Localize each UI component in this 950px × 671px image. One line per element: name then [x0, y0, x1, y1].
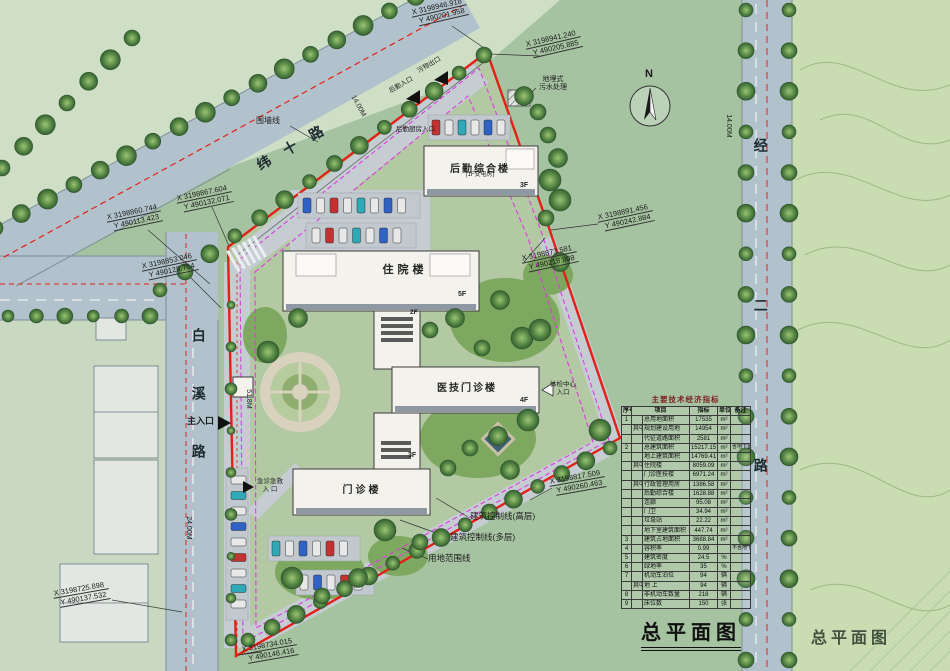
table-row: 连廊95.08m²: [622, 498, 751, 507]
annotation-sewage-line2: 污水处理: [532, 84, 574, 92]
entrance-label-kitchen: 后勤厨房入口: [396, 126, 435, 134]
tree-icon: [781, 43, 797, 59]
table-row: 门卫34.94m²: [622, 508, 751, 517]
tree-icon: [287, 605, 305, 623]
entrance-label-checkup-line1: 体检中心: [548, 381, 578, 389]
tree-icon: [2, 310, 14, 322]
tree-icon: [476, 47, 492, 63]
table-cell: 非机动车数量: [643, 590, 690, 599]
car-icon: [231, 523, 246, 531]
th-unit: 单位: [718, 407, 731, 416]
table-cell: 24.5: [690, 554, 718, 563]
table-cell: [622, 526, 632, 535]
table-cell: 建筑占地面积: [643, 535, 690, 544]
table-cell: m²: [718, 480, 731, 489]
tree-icon: [515, 87, 534, 106]
car-icon: [484, 120, 492, 135]
tree-icon: [170, 118, 188, 136]
table-row: 其中住院楼8059.09m²: [622, 462, 751, 471]
building-label-menzhen: 门诊楼: [312, 481, 412, 496]
table-cell: [731, 416, 751, 425]
table-row: 6绿地率35%: [622, 563, 751, 572]
table-cell: 容积率: [643, 544, 690, 553]
tree-icon: [377, 120, 391, 134]
car-icon: [371, 198, 379, 213]
table-cell: 门诊医技楼: [643, 471, 690, 480]
site-plan-canvas: [0, 0, 950, 671]
tree-icon: [226, 593, 236, 603]
floor-label-houqin: 3F: [520, 182, 528, 189]
tree-icon: [326, 155, 342, 171]
tree-icon: [227, 427, 235, 435]
car-icon: [344, 198, 352, 213]
table-cell: 建筑密度: [643, 554, 690, 563]
table-cell: [632, 590, 643, 599]
table-cell: 14954: [690, 425, 718, 434]
table-cell: [622, 517, 632, 526]
table-cell: 94: [690, 581, 718, 590]
table-cell: [632, 554, 643, 563]
car-icon: [340, 541, 348, 556]
tree-icon: [489, 427, 508, 446]
tree-icon: [226, 468, 236, 478]
table-cell: 218: [690, 590, 718, 599]
table-cell: [622, 462, 632, 471]
entrance-label-checkup-line2: 入口: [548, 389, 578, 397]
tree-icon: [549, 149, 568, 168]
economic-indicators-table: 主要技术经济指标 序号 项目 指标 单位 备注 1总用地面积17535m²其中规…: [621, 394, 750, 609]
table-cell: [632, 489, 643, 498]
annotation-fence: 围墙线: [256, 116, 280, 126]
table-cell: [632, 544, 643, 553]
tree-icon: [91, 161, 109, 179]
tree-icon: [531, 479, 545, 493]
table-cell: 住院楼: [643, 462, 690, 471]
table-cell: 辆: [718, 590, 731, 599]
car-icon: [231, 569, 246, 577]
tree-icon: [501, 461, 520, 480]
table-cell: 3: [622, 535, 632, 544]
table-cell: m²: [718, 416, 731, 425]
table-cell: 5: [622, 554, 632, 563]
table-cell: 447.74: [690, 526, 718, 535]
car-icon: [380, 228, 388, 243]
tree-icon: [462, 440, 478, 456]
field-east-contours: [792, 0, 950, 671]
tree-icon: [781, 408, 797, 424]
car-icon: [317, 198, 325, 213]
tree-icon: [738, 43, 754, 59]
tree-icon: [226, 342, 236, 352]
tree-icon: [227, 552, 235, 560]
table-cell: 1: [622, 416, 632, 425]
table-cell: 行政管理用房: [643, 480, 690, 489]
table-header-row: 序号 项目 指标 单位 备注: [622, 407, 751, 416]
th-value: 指标: [690, 407, 718, 416]
tree-icon: [401, 101, 417, 117]
central-plaza: [260, 352, 340, 432]
tree-icon: [29, 309, 43, 323]
tree-icon: [249, 74, 267, 92]
table-cell: [731, 517, 751, 526]
car-icon: [357, 198, 365, 213]
car-icon: [286, 541, 294, 556]
entrance-label-emergency-line1: 急诊急救: [252, 478, 288, 486]
table-cell: [632, 443, 643, 452]
tree-icon: [201, 245, 219, 263]
tree-icon: [224, 90, 240, 106]
table-row: 后勤综合楼1628.88m²: [622, 489, 751, 498]
car-icon: [353, 228, 361, 243]
table-cell: 3688.84: [690, 535, 718, 544]
tree-icon: [782, 491, 796, 505]
table-cell: 其中: [632, 480, 643, 489]
tree-icon: [782, 369, 796, 383]
table-cell: 4: [622, 544, 632, 553]
th-item: 项目: [632, 407, 690, 416]
table-cell: 其中: [632, 581, 643, 590]
table-cell: 95.08: [690, 498, 718, 507]
tree-icon: [225, 634, 237, 646]
table-cell: %: [718, 554, 731, 563]
tree-icon: [350, 136, 368, 154]
table-cell: [632, 563, 643, 572]
car-icon: [339, 228, 347, 243]
table-row: 5建筑密度24.5%: [622, 554, 751, 563]
table-cell: [731, 599, 751, 608]
tree-icon: [780, 326, 798, 344]
table-cell: 总建筑面积: [643, 443, 690, 452]
car-icon: [314, 575, 322, 590]
table-cell: 7: [622, 572, 632, 581]
table-cell: 辆: [718, 581, 731, 590]
tree-icon: [374, 519, 396, 541]
tree-icon: [780, 448, 798, 466]
table-row: 垃圾站22.22m²: [622, 517, 751, 526]
building-sub-houqin: (1F变电房): [424, 172, 536, 179]
tree-icon: [782, 612, 796, 626]
car-icon: [272, 541, 280, 556]
tree-icon: [35, 115, 55, 135]
table-cell: [632, 452, 643, 461]
table-row: 其中规划建设用地14954m²: [622, 425, 751, 434]
car-icon: [471, 120, 479, 135]
car-icon: [326, 228, 334, 243]
table-cell: m²: [718, 443, 731, 452]
tree-icon: [780, 204, 798, 222]
building-label-zhuyuan: 住院楼: [350, 261, 460, 277]
tree-icon: [328, 31, 346, 49]
tree-icon: [386, 556, 400, 570]
econ-table-body: 1总用地面积17535m²其中规划建设用地14954m²代征道路面积2581m²…: [622, 416, 751, 609]
entrance-label-checkup: 体检中心 入口: [548, 381, 578, 397]
tree-icon: [738, 652, 754, 668]
table-row: 3建筑占地面积3688.84m²: [622, 535, 751, 544]
tree-icon: [739, 125, 753, 139]
table-cell: 连廊: [643, 498, 690, 507]
table-cell: [731, 489, 751, 498]
table-cell: 8059.09: [690, 462, 718, 471]
table-cell: 不含地下室: [731, 544, 751, 553]
tree-icon: [80, 72, 98, 90]
car-icon: [445, 120, 453, 135]
table-cell: [731, 508, 751, 517]
table-cell: m²: [718, 526, 731, 535]
table-cell: 地 上: [643, 581, 690, 590]
tree-icon: [349, 569, 368, 588]
table-cell: 2581: [690, 434, 718, 443]
floor-label-wing: 3F: [408, 452, 416, 459]
table-cell: [632, 416, 643, 425]
table-cell: m²: [718, 508, 731, 517]
tree-icon: [781, 165, 797, 181]
table-cell: 辆: [718, 572, 731, 581]
table-row: 地上建筑面积14769.41m²: [622, 452, 751, 461]
car-icon: [313, 541, 321, 556]
table-cell: 150: [690, 599, 718, 608]
table-row: 8非机动车数量218辆: [622, 590, 751, 599]
table-cell: 8: [622, 590, 632, 599]
tree-icon: [737, 82, 755, 100]
tree-icon: [780, 82, 798, 100]
tree-icon: [145, 133, 161, 149]
tree-icon: [252, 210, 268, 226]
tree-icon: [225, 508, 237, 520]
table-cell: [718, 544, 731, 553]
tree-icon: [228, 229, 242, 243]
building-label-yiji: 医技门诊楼: [412, 379, 522, 394]
table-cell: [731, 563, 751, 572]
table-cell: m²: [718, 471, 731, 480]
table-cell: [731, 581, 751, 590]
tree-icon: [603, 441, 617, 455]
table-cell: 1386.58: [690, 480, 718, 489]
tree-icon: [491, 291, 510, 310]
tree-icon: [15, 137, 33, 155]
tree-icon: [124, 30, 140, 46]
table-cell: 9: [622, 599, 632, 608]
table-cell: m²: [718, 517, 731, 526]
table-cell: 规划建设用地: [643, 425, 690, 434]
table-cell: m²: [718, 489, 731, 498]
table-cell: 1628.88: [690, 489, 718, 498]
floor-label-link: 2F: [410, 309, 418, 316]
table-cell: [731, 572, 751, 581]
road-label-jinger: 经二路: [752, 138, 769, 618]
tree-icon: [530, 104, 546, 120]
table-cell: [731, 498, 751, 507]
dim-site-width: 51.8M: [244, 389, 252, 408]
tree-icon: [452, 66, 466, 80]
table-cell: [731, 526, 751, 535]
table-row: 门诊医技楼6971.24m²: [622, 471, 751, 480]
tree-icon: [153, 283, 167, 297]
entrance-label-main: 主入口: [187, 416, 214, 427]
table-cell: [632, 572, 643, 581]
table-row: 9床位数150张: [622, 599, 751, 608]
tree-icon: [577, 452, 595, 470]
table-cell: 其中: [632, 462, 643, 471]
tree-icon: [12, 205, 30, 223]
tree-icon: [739, 612, 753, 626]
drawing-title: 总平面图: [641, 616, 741, 651]
table-cell: m²: [718, 498, 731, 507]
tree-icon: [529, 319, 551, 341]
car-icon: [366, 228, 374, 243]
table-cell: [731, 434, 751, 443]
table-cell: [622, 471, 632, 480]
tree-icon: [540, 127, 556, 143]
car-icon: [231, 538, 246, 546]
tree-icon: [314, 588, 330, 604]
table-row: 其中行政管理用房1386.58m²: [622, 480, 751, 489]
car-icon: [303, 198, 311, 213]
table-cell: 6: [622, 563, 632, 572]
car-icon: [326, 541, 334, 556]
table-cell: 22.22: [690, 517, 718, 526]
table-cell: 门卫: [643, 508, 690, 517]
tree-icon: [264, 619, 280, 635]
tree-icon: [782, 247, 796, 261]
tree-icon: [782, 125, 796, 139]
table-cell: [731, 554, 751, 563]
table-cell: [622, 498, 632, 507]
table-cell: [731, 462, 751, 471]
tree-icon: [412, 534, 428, 550]
table-cell: [632, 599, 643, 608]
site-plan-drawing: 白溪路 经二路 纬十路 后勤综合楼 (1F变电房) 3F 住院楼 5F 2F 医…: [0, 0, 950, 671]
table-cell: [622, 434, 632, 443]
table-cell: m²: [718, 535, 731, 544]
tree-icon: [87, 310, 99, 322]
table-cell: 35: [690, 563, 718, 572]
tree-icon: [589, 419, 611, 441]
tree-icon: [276, 191, 294, 209]
car-icon: [393, 228, 401, 243]
table-cell: 2: [622, 443, 632, 452]
tree-icon: [303, 175, 317, 189]
table-cell: [622, 508, 632, 517]
table-cell: [622, 581, 632, 590]
tree-icon: [142, 308, 158, 324]
table-cell: m²: [718, 434, 731, 443]
tree-icon: [381, 3, 397, 19]
table-row: 7机动车泊位94辆: [622, 572, 751, 581]
tree-icon: [782, 3, 796, 17]
north-label: N: [645, 68, 653, 81]
car-icon: [231, 585, 246, 593]
entrance-label-emergency-line2: 入 口: [252, 486, 288, 494]
car-icon: [312, 228, 320, 243]
tree-icon: [195, 102, 215, 122]
tree-icon: [100, 50, 120, 70]
table-row: 其中地 上94辆: [622, 581, 751, 590]
table-cell: 含地下室: [731, 443, 751, 452]
tree-icon: [504, 490, 522, 508]
table-cell: [622, 425, 632, 434]
tree-icon: [538, 210, 554, 226]
tree-icon: [303, 46, 319, 62]
tree-icon: [257, 341, 279, 363]
car-icon: [398, 198, 406, 213]
road-label-baixi: 白溪路: [190, 328, 207, 502]
table-cell: 14769.41: [690, 452, 718, 461]
table-cell: 垃圾站: [643, 517, 690, 526]
table-cell: [632, 526, 643, 535]
table-cell: 其中: [632, 425, 643, 434]
tree-icon: [289, 309, 308, 328]
tree-icon: [780, 570, 798, 588]
table-cell: 地下室建筑面积: [643, 526, 690, 535]
tree-icon: [739, 369, 753, 383]
table-cell: 绿地率: [643, 563, 690, 572]
tree-icon: [432, 529, 450, 547]
table-cell: m²: [718, 452, 731, 461]
car-icon: [458, 120, 466, 135]
table-cell: [632, 471, 643, 480]
tree-icon: [781, 286, 797, 302]
tree-icon: [440, 460, 456, 476]
tree-icon: [739, 247, 753, 261]
table-cell: [731, 590, 751, 599]
table-cell: m²: [718, 462, 731, 471]
table-cell: 代征道路面积: [643, 434, 690, 443]
tree-icon: [425, 82, 443, 100]
table-cell: 0.99: [690, 544, 718, 553]
tree-icon: [281, 567, 303, 589]
tree-icon: [739, 3, 753, 17]
table-row: 地下室建筑面积447.74m²: [622, 526, 751, 535]
table-cell: 床位数: [643, 599, 690, 608]
table-cell: 后勤综合楼: [643, 489, 690, 498]
tree-icon: [539, 169, 561, 191]
tree-icon: [474, 340, 490, 356]
car-icon: [299, 541, 307, 556]
table-cell: m²: [718, 425, 731, 434]
th-note: 备注: [731, 407, 751, 416]
entrance-label-emergency: 急诊急救 入 口: [252, 478, 288, 494]
table-row: 2总建筑面积15217.15m²含地下室: [622, 443, 751, 452]
drawing-title-secondary: 总平面图: [811, 624, 891, 648]
annotation-control-high: 建筑控制线(高层): [470, 511, 535, 521]
table-cell: [731, 471, 751, 480]
annotation-sewage: 地埋式 污水处理: [532, 76, 574, 93]
table-cell: 6971.24: [690, 471, 718, 480]
tree-icon: [446, 309, 465, 328]
table-row: 4容积率0.99不含地下室: [622, 544, 751, 553]
table-cell: [731, 452, 751, 461]
table-cell: [632, 434, 643, 443]
tree-icon: [517, 409, 539, 431]
table-cell: 34.94: [690, 508, 718, 517]
tree-icon: [59, 95, 75, 111]
tree-icon: [549, 189, 571, 211]
th-no: 序号: [622, 407, 632, 416]
table-cell: 17535: [690, 416, 718, 425]
tree-icon: [116, 146, 136, 166]
tree-icon: [781, 652, 797, 668]
tree-icon: [225, 383, 237, 395]
floor-label-yiji: 4F: [520, 397, 528, 404]
car-icon: [330, 198, 338, 213]
car-icon: [231, 492, 246, 500]
tree-icon: [115, 309, 129, 323]
table-cell: [632, 498, 643, 507]
table-cell: [632, 517, 643, 526]
car-icon: [327, 575, 335, 590]
floor-label-zhuyuan: 5F: [458, 291, 466, 298]
table-cell: [731, 425, 751, 434]
